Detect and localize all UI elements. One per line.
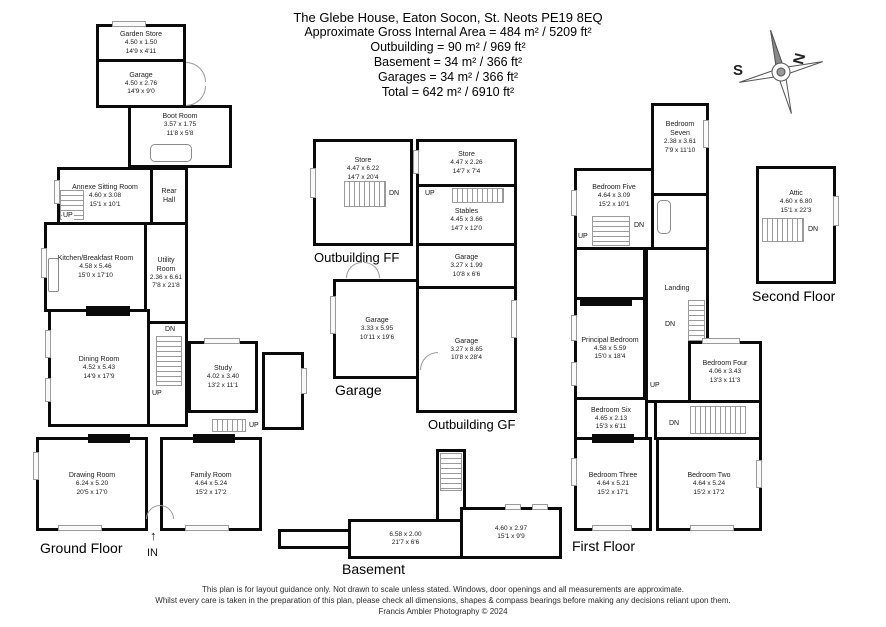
window — [204, 338, 240, 344]
window — [505, 504, 521, 510]
room-dim-imperial: 14'7 x 12'0 — [451, 225, 482, 234]
room-dim-imperial: 15'0 x 17'10 — [78, 272, 113, 281]
room-name: Family Room — [190, 471, 231, 480]
room-outbuilding-gf-garage-small: Garage 3.27 x 1.99 10'8 x 6'6 — [416, 243, 517, 289]
stairs-icon — [440, 453, 462, 491]
total-area: Total = 642 m² / 6910 ft² — [240, 85, 656, 100]
room-dim-imperial: 15'2 x 10'1 — [598, 201, 629, 210]
room-dim-imperial: 15'2 x 17'1 — [597, 489, 628, 498]
stairs-down-label: DN — [388, 190, 400, 198]
room-dim-imperial: 15'1 x 9'9 — [497, 533, 524, 542]
room-dim-metric: 4.47 x 6.22 — [347, 165, 379, 174]
basement-label: Basement — [342, 561, 405, 577]
stairs-down-label: DN — [633, 222, 645, 230]
outbuilding-gf-label: Outbuilding GF — [428, 417, 515, 432]
fireplace-icon — [592, 434, 634, 443]
room-principal-bedroom: Principal Bedroom 4.58 x 5.59 15'0 x 18'… — [574, 297, 646, 400]
window — [112, 21, 146, 27]
stairs-icon — [156, 336, 182, 386]
room-dim-metric: 4.50 x 1.50 — [125, 39, 157, 48]
room-name: Attic — [789, 189, 803, 198]
window — [45, 330, 51, 358]
room-dim-imperial: 21'7 x 6'6 — [392, 539, 419, 548]
room-name: Store — [355, 156, 372, 165]
floorplan-canvas: The Glebe House, Eaton Socon, St. Neots … — [0, 0, 886, 627]
room-study: Study 4.02 x 3.40 13'2 x 11'1 — [188, 341, 258, 413]
room-drawing: Drawing Room 6.24 x 5.20 20'5 x 17'0 — [36, 437, 148, 531]
room-name: Utility Room — [149, 256, 183, 274]
room-dim-imperial: 7'8 x 21'8 — [152, 282, 179, 291]
bathtub-icon — [150, 144, 192, 162]
outbuilding-area: Outbuilding = 90 m² / 969 ft² — [240, 40, 656, 55]
stairs-down-label: DN — [807, 226, 819, 234]
stairs-up-label: UP — [577, 233, 589, 241]
room-dim-metric: 6.24 x 5.20 — [76, 480, 108, 489]
room-name: Bedroom Four — [703, 359, 748, 368]
room-cloakroom — [262, 352, 304, 430]
room-dim-metric: 3.27 x 8.65 — [450, 346, 482, 355]
gross-internal-area: Approximate Gross Internal Area = 484 m²… — [240, 25, 656, 40]
window — [33, 452, 39, 480]
room-dim-metric: 4.64 x 5.21 — [597, 480, 629, 489]
room-dim-metric: 4.52 x 5.43 — [83, 364, 115, 373]
window — [185, 525, 229, 531]
window — [310, 168, 316, 198]
room-dim-metric: 4.58 x 5.46 — [79, 263, 111, 272]
window — [301, 368, 307, 394]
window — [571, 362, 577, 386]
entrance-label: IN — [147, 547, 158, 559]
room-name: Store — [458, 150, 475, 159]
room-family: Family Room 4.64 x 5.24 15'2 x 17'2 — [160, 437, 262, 531]
window — [690, 525, 734, 531]
garages-area: Garages = 34 m² / 366 ft² — [240, 70, 656, 85]
wardrobe-icon — [580, 297, 632, 306]
window — [592, 525, 632, 531]
fireplace-icon — [193, 434, 235, 443]
stairs-up-label: UP — [649, 382, 661, 390]
window — [54, 180, 60, 204]
room-dim-metric: 4.58 x 5.59 — [594, 345, 626, 354]
room-dim-metric: 4.60 x 3.08 — [89, 192, 121, 201]
room-utility: Utility Room 2.36 x 6.61 7'8 x 21'8 — [144, 222, 188, 324]
stairs-up-label: UP — [248, 422, 260, 430]
room-name: Landing — [665, 284, 690, 293]
compass-rose-icon — [733, 24, 829, 120]
room-name: Garage — [455, 337, 478, 346]
garage-label: Garage — [335, 382, 382, 398]
window — [45, 378, 51, 402]
room-dim-imperial: 10'8 x 28'4 — [451, 354, 482, 363]
room-bedroom-seven: Bedroom Seven 2.38 x 3.61 7'9 x 11'10 — [651, 103, 709, 196]
room-dim-metric: 4.64 x 5.24 — [195, 480, 227, 489]
room-dim-metric: 4.45 x 3.66 — [450, 216, 482, 225]
window — [41, 248, 47, 278]
room-outbuilding-gf-garage-long: Garage 3.27 x 8.65 10'8 x 28'4 — [416, 286, 517, 413]
room-name: Drawing Room — [69, 471, 115, 480]
room-dim-imperial: 14'9 x 17'9 — [83, 373, 114, 382]
bathtub-icon — [657, 200, 671, 234]
window — [571, 190, 577, 216]
stairs-icon — [592, 216, 630, 246]
room-dim-imperial: 14'9 x 9'0 — [127, 88, 154, 97]
stairs-up-label: UP — [424, 190, 436, 198]
room-dim-metric: 4.60 x 6.80 — [780, 198, 812, 207]
room-name: Garage — [129, 71, 152, 80]
room-rear-hall: Rear Hall — [150, 167, 188, 225]
room-dim-metric: 2.38 x 3.61 — [664, 138, 696, 147]
window — [330, 296, 336, 334]
room-dim-imperial: 15'0 x 18'4 — [594, 353, 625, 362]
room-ensuite — [574, 247, 646, 300]
room-dim-metric: 4.64 x 5.24 — [693, 480, 725, 489]
room-dim-metric: 4.47 x 2.26 — [450, 159, 482, 168]
room-dim-imperial: 15'2 x 17'2 — [693, 489, 724, 498]
disclaimer: This plan is for layout guidance only. N… — [53, 584, 833, 617]
entrance-arrow-icon: ↑ — [150, 529, 157, 542]
window — [511, 300, 517, 338]
room-name: Garden Store — [120, 30, 162, 39]
stairs-down-label: DN — [164, 326, 176, 334]
room-annexe-garage: Garage 4.50 x 2.76 14'9 x 9'0 — [96, 59, 186, 108]
room-garden-store: Garden Store 4.50 x 1.50 14'9 x 4'11 — [96, 24, 186, 62]
compass-south-label: S — [733, 62, 743, 79]
room-dim-imperial: 20'5 x 17'0 — [76, 489, 107, 498]
window — [532, 504, 548, 510]
room-basement-a: 6.58 x 2.00 21'7 x 6'6 — [348, 519, 463, 559]
door-arc-icon — [186, 86, 206, 106]
room-dim-imperial: 14'9 x 4'11 — [126, 48, 157, 57]
window — [58, 525, 102, 531]
room-dim-imperial: 15'3 x 6'11 — [596, 423, 627, 432]
room-name: Dining Room — [79, 355, 119, 364]
room-dim-imperial: 14'7 x 7'4 — [453, 168, 480, 177]
room-basement-b: 4.60 x 2.97 15'1 x 9'9 — [460, 507, 562, 559]
room-name: Study — [214, 364, 232, 373]
room-name: Garage — [365, 316, 388, 325]
window — [703, 120, 709, 148]
room-dim-metric: 4.64 x 3.09 — [598, 192, 630, 201]
window — [413, 150, 419, 174]
room-dining: Dining Room 4.52 x 5.43 14'9 x 17'9 — [48, 309, 150, 427]
room-dim-metric: 4.50 x 2.76 — [125, 80, 157, 89]
room-dim-imperial: 13'3 x 11'3 — [710, 377, 741, 386]
window — [833, 196, 839, 226]
property-address: The Glebe House, Eaton Socon, St. Neots … — [240, 10, 656, 25]
room-dim-metric: 6.58 x 2.00 — [389, 531, 421, 540]
kitchen-counter-icon — [48, 258, 59, 292]
stairs-icon — [762, 218, 804, 242]
room-dim-metric: 4.06 x 3.43 — [709, 368, 741, 377]
room-name: Bedroom Three — [589, 471, 638, 480]
window — [702, 338, 740, 344]
room-name: Bedroom Five — [592, 183, 636, 192]
room-bedroom-four: Bedroom Four 4.06 x 3.43 13'3 x 11'3 — [688, 341, 762, 403]
second-floor-label: Second Floor — [752, 288, 835, 304]
stairs-up-label: UP — [151, 390, 163, 398]
stairs-up-label: UP — [62, 212, 74, 220]
room-name: Kitchen/Breakfast Room — [58, 254, 133, 263]
stairs-down-label: DN — [664, 321, 676, 329]
room-name: Stables — [455, 207, 478, 216]
room-dim-imperial: 10'11 x 19'6 — [360, 334, 394, 343]
room-detached-garage: Garage 3.33 x 5.95 10'11 x 19'6 — [333, 279, 421, 379]
fireplace-icon — [88, 434, 130, 443]
first-floor-label: First Floor — [572, 538, 635, 554]
disclaimer-line1: This plan is for layout guidance only. N… — [53, 584, 833, 595]
room-name: Principal Bedroom — [581, 336, 638, 345]
compass: S N — [733, 24, 829, 120]
room-name: Garage — [455, 253, 478, 262]
room-dim-metric: 4.65 x 2.13 — [595, 415, 627, 424]
room-dim-metric: 3.33 x 5.95 — [361, 325, 393, 334]
room-dim-metric: 3.57 x 1.75 — [164, 121, 196, 130]
room-name: Bedroom Seven — [660, 120, 700, 138]
room-name: Boot Room — [162, 112, 197, 121]
window — [571, 315, 577, 341]
room-dim-metric: 3.27 x 1.99 — [450, 262, 482, 271]
title-block: The Glebe House, Eaton Socon, St. Neots … — [240, 10, 656, 100]
disclaimer-line2: Whilst every care is taken in the prepar… — [53, 595, 833, 606]
copyright-line: Francis Ambler Photography © 2024 — [53, 606, 833, 617]
window — [756, 460, 762, 488]
stairs-down-label: DN — [668, 420, 680, 428]
basement-area: Basement = 34 m² / 366 ft² — [240, 55, 656, 70]
room-dim-metric: 2.36 x 6.61 — [150, 274, 182, 283]
basement-corridor — [278, 529, 351, 549]
stairs-icon — [452, 188, 504, 203]
stairs-icon — [690, 406, 746, 434]
room-dim-imperial: 15'1 x 10'1 — [89, 201, 120, 210]
room-kitchen-breakfast: Kitchen/Breakfast Room 4.58 x 5.46 15'0 … — [44, 222, 147, 312]
room-dim-imperial: 15'2 x 17'2 — [195, 489, 226, 498]
room-dim-imperial: 15'1 x 22'3 — [780, 207, 811, 216]
room-outbuilding-gf-store: Store 4.47 x 2.26 14'7 x 7'4 — [416, 139, 517, 187]
window — [571, 458, 577, 486]
room-name: Bedroom Six — [591, 406, 631, 415]
room-dim-imperial: 7'9 x 11'10 — [665, 147, 696, 156]
stairs-icon — [344, 181, 386, 207]
room-dim-metric: 4.02 x 3.40 — [207, 373, 239, 382]
room-bedroom-two: Bedroom Two 4.64 x 5.24 15'2 x 17'2 — [656, 437, 762, 531]
stairs-icon — [212, 419, 246, 432]
room-dim-imperial: 11'8 x 5'8 — [167, 130, 194, 139]
fireplace-icon — [86, 306, 130, 316]
ground-floor-label: Ground Floor — [40, 540, 122, 556]
door-arc-icon — [186, 62, 206, 82]
door-arc-icon — [146, 505, 160, 519]
room-dim-metric: 4.60 x 2.97 — [495, 525, 527, 534]
room-name: Rear Hall — [157, 187, 181, 205]
room-dim-imperial: 10'8 x 6'6 — [453, 271, 480, 280]
room-dim-imperial: 13'2 x 11'1 — [208, 382, 239, 391]
room-name: Bedroom Two — [687, 471, 730, 480]
room-bedroom-three: Bedroom Three 4.64 x 5.21 15'2 x 17'1 — [574, 437, 652, 531]
